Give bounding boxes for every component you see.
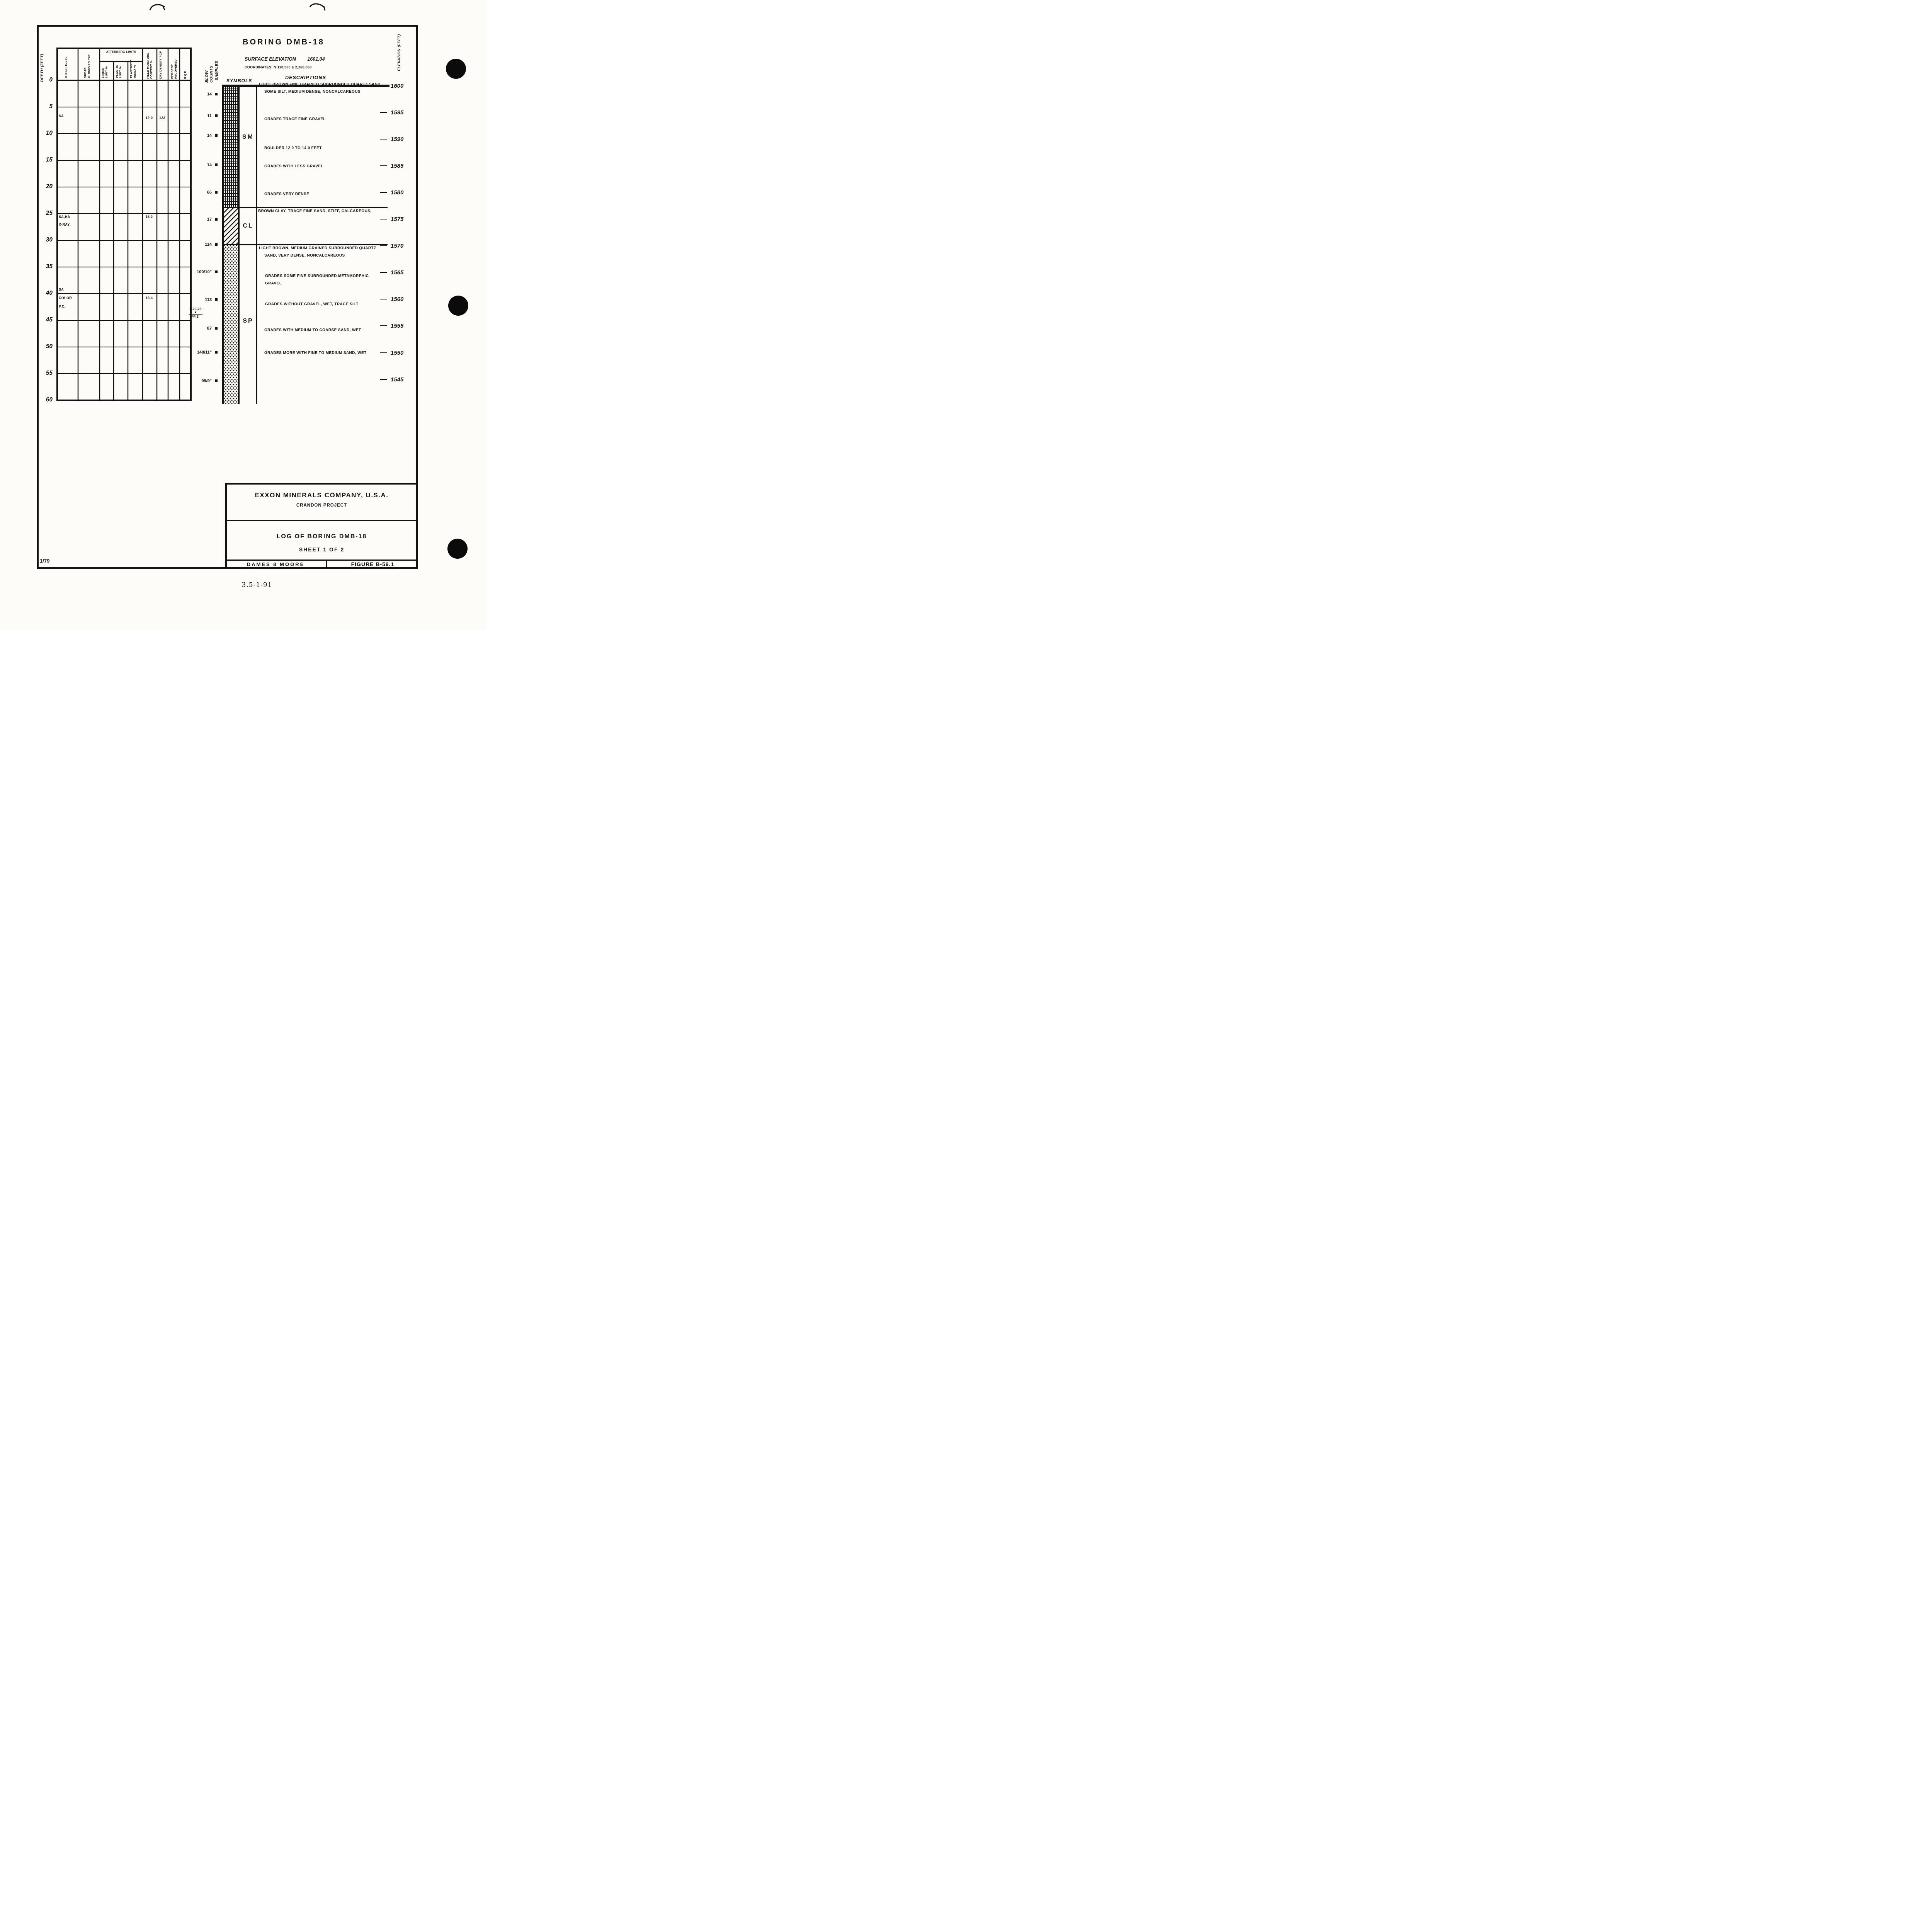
sample-marker	[215, 379, 218, 382]
hole-punch	[447, 539, 468, 559]
depth-tick: 10	[36, 130, 53, 137]
blow-count-value: 99/9"	[182, 379, 212, 383]
blow-count-value: 114	[182, 242, 212, 247]
depth-tick: 45	[36, 316, 53, 323]
sample-marker	[215, 270, 218, 273]
elevation-tick	[380, 192, 387, 193]
elevation-tick	[380, 352, 387, 353]
description-line: BOULDER 12.0 TO 14.0 FEET	[264, 146, 322, 150]
title-block-divider	[225, 520, 418, 521]
elevation-value: 1560	[391, 296, 403, 303]
column-header-field-moisture: FIELD MOISTURE CONTENT %	[146, 49, 153, 79]
description-line: GRADES WITH MEDIUM TO COARSE SAND, WET	[264, 328, 361, 332]
description-line: GRADES SOME FINE SUBROUNDED METAMORPHIC	[265, 274, 369, 278]
dry-density-cell: 123	[157, 116, 167, 120]
boring-log-sheet: BORING DMB-18 SURFACE ELEVATION 1601.04 …	[0, 0, 487, 629]
depth-tick: 55	[36, 370, 53, 377]
elevation-tick	[380, 325, 387, 326]
depth-tick: 40	[36, 290, 53, 297]
blow-count-value: 113	[182, 298, 212, 302]
blow-count-value: 14	[182, 133, 212, 138]
log-column-lines	[222, 84, 390, 405]
water-level-depth: 44.2'	[183, 315, 208, 318]
elevation-axis-label: ELEVATION (FEET)	[397, 34, 402, 71]
elevation-value: 1580	[391, 189, 403, 196]
column-header-rqd: RQD	[184, 49, 187, 79]
sample-marker	[215, 134, 218, 137]
descriptions-column-header: DESCRIPTIONS	[277, 75, 335, 80]
column-header-dry-density: DRY DENSITY PCF	[159, 49, 162, 79]
description-line: SAND, VERY DENSE, NONCALCAREOUS	[264, 253, 345, 258]
sample-marker	[215, 191, 218, 194]
symbols-column-header: SYMBOLS	[226, 78, 252, 83]
sample-marker	[215, 218, 218, 221]
elevation-value: 1575	[391, 216, 403, 223]
water-level-annotation: 6-26-78 ▼ 44.2'	[183, 307, 208, 318]
hole-punch	[446, 59, 466, 79]
description-line: SOME SILT, MEDIUM DENSE, NONCALCAREOUS	[264, 90, 361, 94]
elevation-tick	[380, 272, 387, 273]
elevation-value: 1555	[391, 323, 403, 329]
boring-title: BORING DMB-18	[243, 38, 325, 47]
description-line: GRADES VERY DENSE	[264, 192, 309, 196]
title-block-divider	[225, 560, 418, 561]
elevation-value: 1570	[391, 243, 403, 249]
elevation-tick	[380, 112, 387, 113]
depth-tick: 30	[36, 236, 53, 243]
surface-elevation-value: 1601.04	[307, 56, 325, 62]
company-name: EXXON MINERALS COMPANY, U.S.A.	[225, 492, 418, 499]
uscs-code-cl: CL	[240, 223, 257, 230]
description-line: GRADES WITH LESS GRAVEL	[264, 164, 323, 168]
depth-tick: 50	[36, 343, 53, 350]
elevation-value: 1565	[391, 269, 403, 276]
other-tests-cell: SA	[59, 287, 64, 291]
coordinates: COORDINATES: N 110,560 E 2,268,060	[245, 65, 312, 69]
sample-marker	[215, 298, 218, 301]
column-header-shear-strength: SHEAR STRENGTH PSF	[83, 50, 90, 78]
elevation-tick	[380, 165, 387, 166]
elevation-tick	[380, 85, 387, 86]
description-line: GRADES WITHOUT GRAVEL, WET, TRACE SILT	[265, 302, 359, 306]
description-line: LIGHT BROWN FINE GRAINED SUBROUNDED QUAR…	[259, 82, 382, 87]
project-name: CRANDON PROJECT	[225, 503, 418, 508]
field-moisture-cell: 13.4	[143, 296, 155, 300]
blow-count-value: 11	[182, 114, 212, 118]
depth-tick: 20	[36, 183, 53, 190]
column-header-percent-recovered: PERCENT RECOVERED	[170, 49, 177, 79]
other-tests-cell: COLOR	[59, 296, 72, 300]
elevation-tick	[380, 299, 387, 299]
description-line: LIGHT BROWN, MEDIUM GRAINED SUBROUNDED Q…	[259, 246, 376, 250]
elevation-tick	[380, 379, 387, 380]
description-line: GRAVEL	[265, 281, 282, 286]
description-line: GRADES MORE WITH FINE TO MEDIUM SAND, WE…	[264, 351, 367, 355]
depth-tick: 15	[36, 156, 53, 163]
uscs-code-sp: SP	[240, 318, 257, 325]
elevation-tick	[380, 219, 387, 219]
column-header-atterberg-limits: ATTERBERG LIMITS	[100, 50, 142, 54]
sample-marker	[215, 114, 218, 117]
other-tests-cell: SA	[59, 114, 64, 118]
blow-count-value: 100/10"	[182, 270, 212, 274]
sample-marker	[215, 327, 218, 330]
blow-count-value: 148/11"	[182, 350, 212, 355]
firm-logotype: DAMES 8 MOORE	[225, 561, 326, 567]
field-moisture-cell: 12.0	[143, 116, 155, 120]
log-title: LOG OF BORING DMB-18	[225, 533, 418, 540]
sample-marker	[215, 243, 218, 246]
column-header-plastic-limit: PLASTIC LIMIT %	[115, 62, 122, 78]
blow-counts-axis-label: BLOW COUNTS	[205, 57, 214, 83]
blow-count-value: 14	[182, 92, 212, 97]
sample-marker	[215, 351, 218, 354]
depth-tick: 35	[36, 263, 53, 270]
elevation-value: 1595	[391, 109, 403, 116]
figure-number: FIGURE B-59.1	[327, 561, 418, 567]
elevation-value: 1545	[391, 376, 403, 383]
blow-count-value: 66	[182, 190, 212, 195]
footer-date: 1/79	[40, 558, 49, 564]
uscs-code-sm: SM	[240, 134, 257, 141]
sample-marker	[215, 93, 218, 95]
elevation-value: 1590	[391, 136, 403, 143]
other-tests-cell: SA,HA	[59, 215, 70, 219]
description-line: GRADES TRACE FINE GRAVEL	[264, 117, 326, 121]
blow-count-value: 87	[182, 326, 212, 331]
surface-elevation-label: SURFACE ELEVATION	[245, 56, 296, 62]
blow-count-value: 17	[182, 217, 212, 222]
description-line: BROWN CLAY, TRACE FINE SAND, STIFF, CALC…	[258, 209, 371, 213]
scan-squiggle-mark	[309, 2, 326, 12]
water-level-icon: ▼	[189, 311, 202, 315]
hole-punch	[448, 296, 468, 316]
column-header-liquid-limit: LIQUID LIMIT %	[101, 62, 108, 78]
column-header-other-tests: OTHER TESTS	[64, 50, 68, 78]
field-moisture-cell: 16.2	[143, 215, 155, 219]
elevation-value: 1600	[391, 83, 403, 89]
blow-count-value: 14	[182, 163, 212, 167]
sheet-number: SHEET 1 OF 2	[225, 546, 418, 553]
other-tests-cell: X-RAY	[59, 223, 70, 226]
elevation-tick	[380, 139, 387, 139]
samples-axis-label: SAMPLES	[215, 49, 219, 80]
depth-tick: 25	[36, 210, 53, 217]
other-tests-cell: P.C.	[59, 304, 66, 308]
elevation-tick	[380, 245, 387, 246]
scan-squiggle-mark	[149, 2, 166, 12]
sample-marker	[215, 163, 218, 166]
depth-tick: 60	[36, 396, 53, 403]
column-header-plasticity-index: PLASTICITY INDEX %	[129, 62, 136, 78]
depth-tick: 5	[36, 103, 53, 110]
elevation-value: 1585	[391, 163, 403, 169]
footer-document-number: 3.5-1-91	[214, 581, 299, 589]
depth-tick: 0	[36, 77, 53, 83]
test-data-table-grid	[55, 48, 192, 401]
elevation-value: 1550	[391, 350, 403, 356]
